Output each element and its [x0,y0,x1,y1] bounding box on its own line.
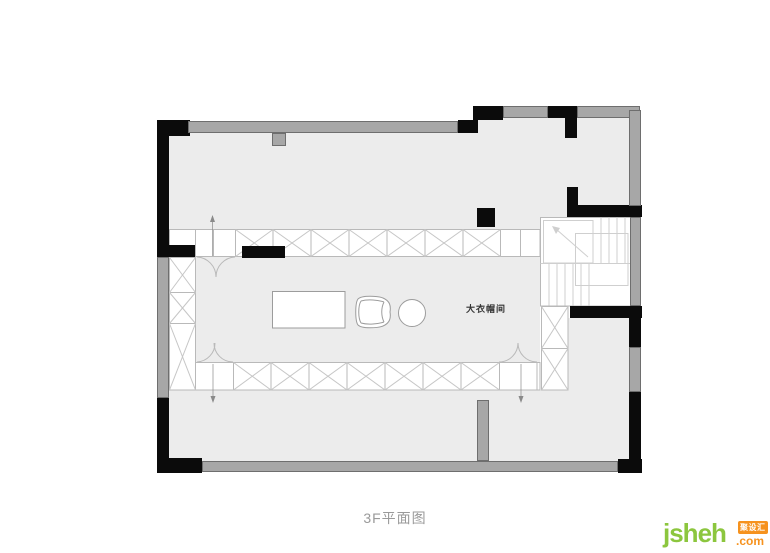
island-table [273,292,346,329]
wall-segment-black-2 [157,245,195,257]
wall-segment-black-16 [157,398,169,460]
door-swing-arc [197,343,215,362]
wall-segment-black-7 [565,106,577,138]
door-swing-arc [518,343,537,362]
wall-segment-gray-top-wall-pier [272,133,286,146]
screenshot-canvas: 大衣帽间 3F平面图 jsheh 聚设汇 .com [0,0,770,553]
watermark-brand-text: jsheh [663,517,726,549]
wall-segment-black-1 [157,120,169,257]
door-swing-arc [214,343,233,362]
wall-segment-black-5 [473,106,503,120]
wall-segment-black-11 [570,306,642,318]
wall-segment-gray-top-wall [188,121,458,133]
wall-segment-black-3 [242,246,285,258]
stair-landing [544,221,594,264]
section-marker-arrow [211,396,216,403]
wall-segment-black-4 [458,120,478,133]
wall-segment-gray-bottom-wall [202,461,618,472]
wall-segment-black-13 [629,392,641,460]
wall-segment-black-14 [618,459,642,473]
section-marker-arrow [519,396,524,403]
wall-segment-gray-right-wall-window [629,347,641,392]
wall-segment-black-8 [477,208,495,227]
wall-segment-gray-interior-wall-stub [477,400,489,461]
wall-segment-black-12 [629,318,641,347]
door-swing-arc [216,257,235,277]
cabinet-row-bottom [196,363,541,391]
wall-segment-gray-top-wall-right-1 [503,106,548,118]
watermark-badge: 聚设汇 [738,521,768,534]
stool [399,300,426,327]
door-swing-arc [197,257,216,277]
plan-title: 3F平面图 [340,508,450,528]
site-watermark-logo: jsheh 聚设汇 .com [663,517,768,551]
floor-plan: 大衣帽间 [0,0,770,553]
watermark-tld-text: .com [736,534,764,548]
wall-segment-black-15 [157,458,202,473]
walk-in-closet-label: 大衣帽间 [466,302,506,315]
wall-segment-gray-left-wall-window [157,257,169,398]
wall-segment-gray-right-wall-upper [629,110,641,206]
wall-segment-black-10 [567,205,642,217]
section-marker-arrow [210,215,215,222]
wall-segment-gray-right-wall-stair [630,217,641,306]
door-swing-arc [499,343,518,362]
